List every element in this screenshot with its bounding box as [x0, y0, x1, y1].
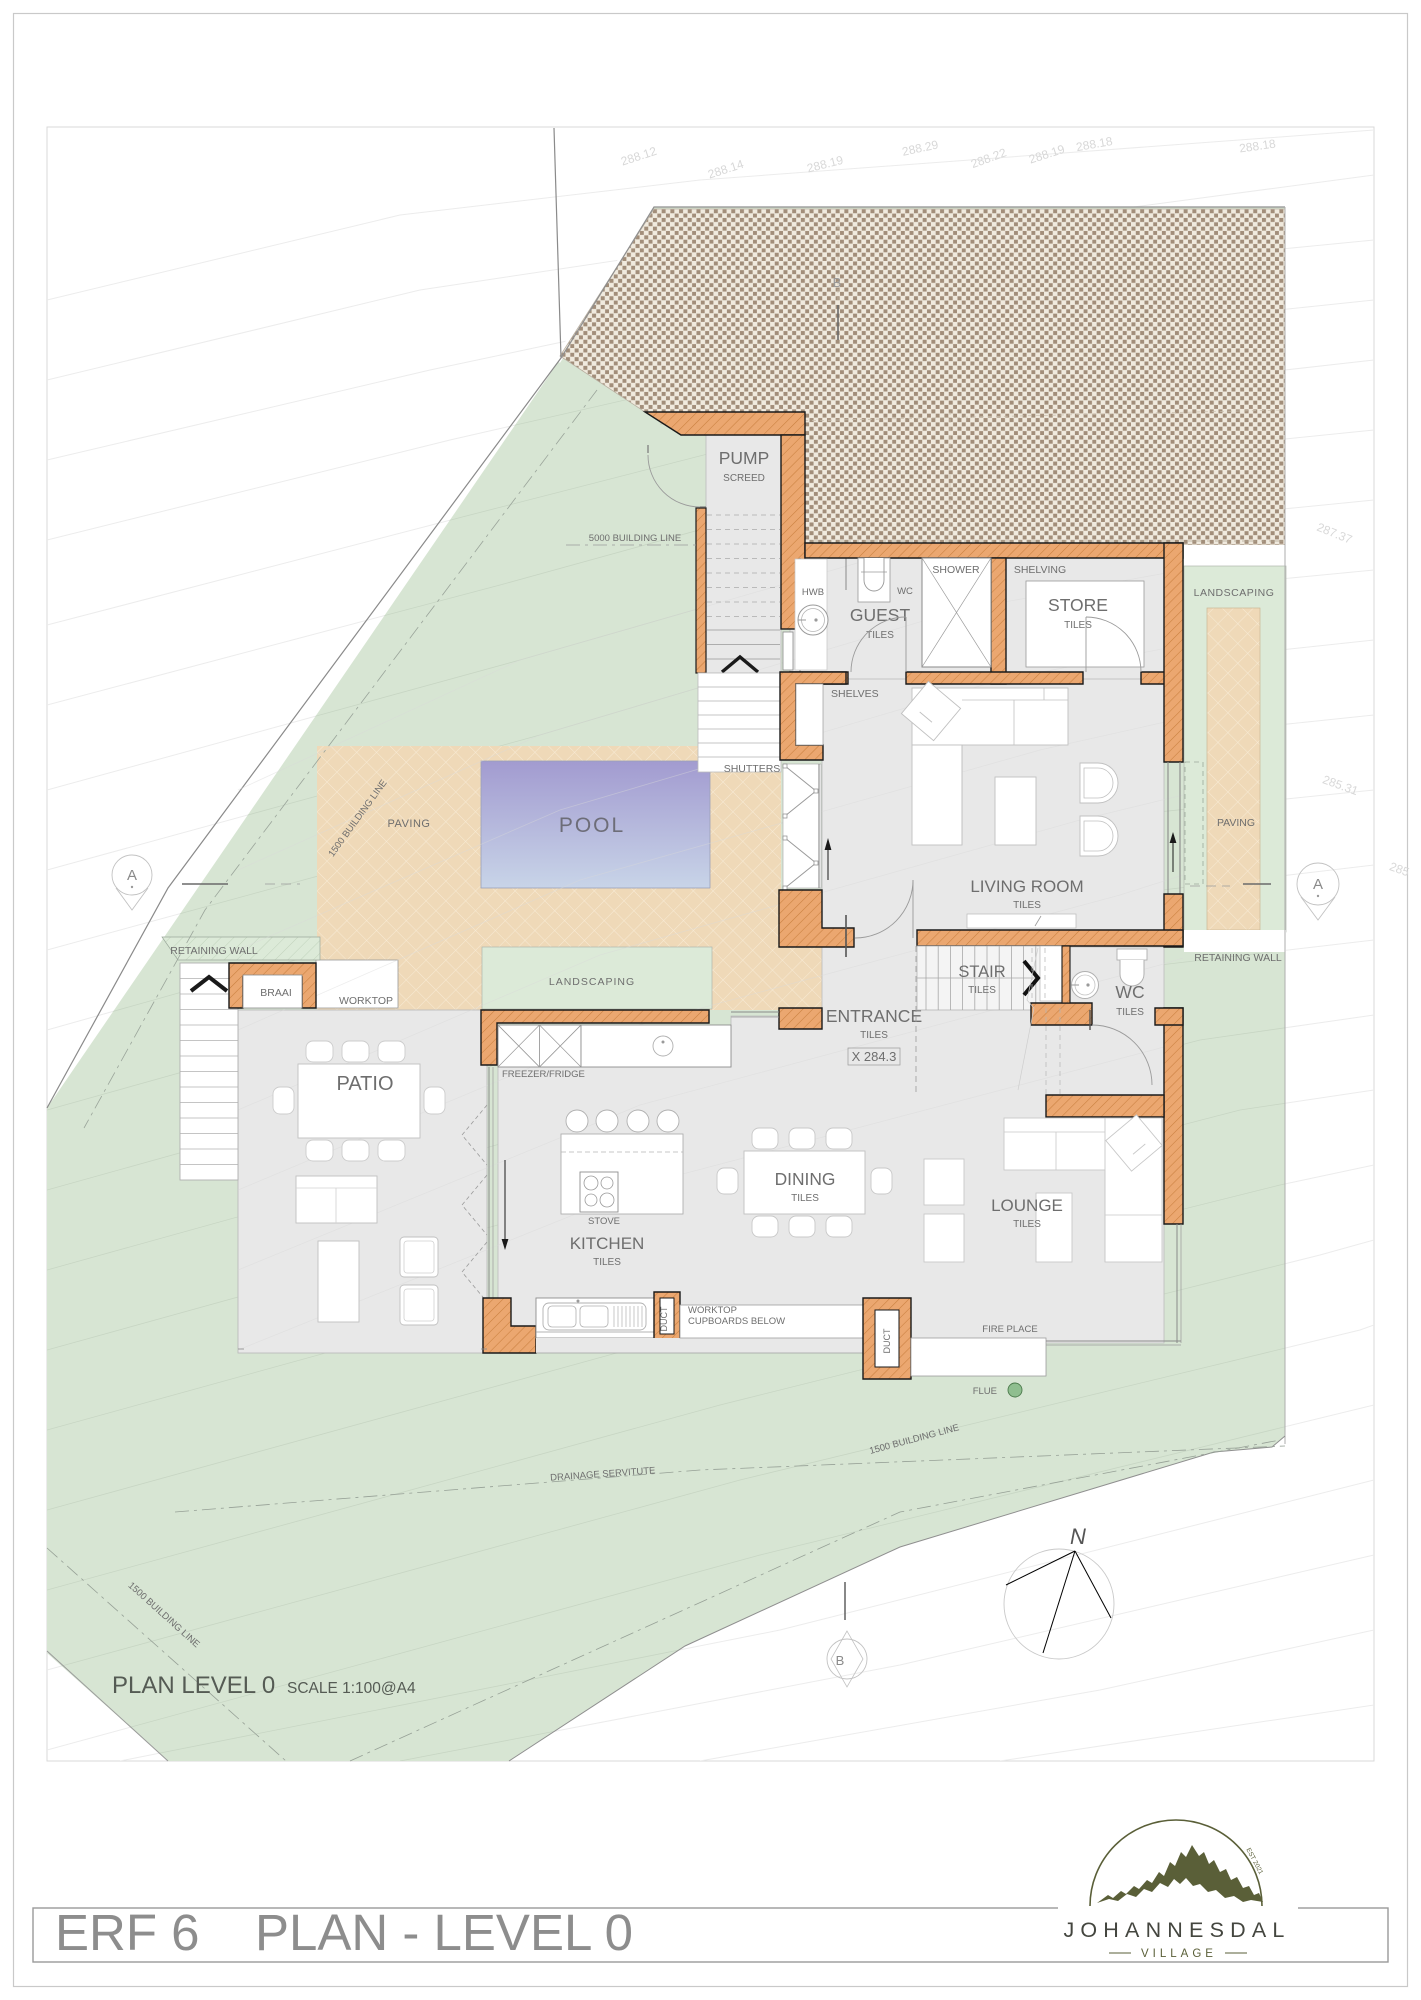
- svg-text:LOUNGE: LOUNGE: [991, 1196, 1063, 1215]
- svg-text:TILES: TILES: [1064, 620, 1092, 631]
- svg-text:HWB: HWB: [802, 587, 824, 598]
- svg-text:WORKTOP: WORKTOP: [688, 1305, 737, 1316]
- svg-text:DUCT: DUCT: [882, 1328, 892, 1353]
- svg-text:LANDSCAPING: LANDSCAPING: [549, 976, 635, 988]
- svg-text:STOVE: STOVE: [588, 1216, 620, 1227]
- svg-text:A: A: [1313, 876, 1323, 893]
- svg-text:B: B: [836, 1653, 845, 1668]
- svg-text:A: A: [127, 867, 137, 884]
- svg-text:TILES: TILES: [1013, 900, 1041, 911]
- svg-text:STORE: STORE: [1048, 595, 1108, 615]
- svg-text:SHUTTERS: SHUTTERS: [724, 763, 781, 775]
- svg-text:WORKTOP: WORKTOP: [339, 995, 393, 1007]
- svg-text:LIVING ROOM: LIVING ROOM: [970, 877, 1083, 896]
- svg-text:PLAN LEVEL 0: PLAN LEVEL 0: [112, 1672, 275, 1699]
- svg-text:LANDSCAPING: LANDSCAPING: [1194, 587, 1275, 599]
- svg-text:DINING: DINING: [775, 1169, 836, 1189]
- svg-text:PLAN - LEVEL 0: PLAN - LEVEL 0: [255, 1904, 633, 1961]
- svg-text:POOL: POOL: [559, 814, 625, 837]
- svg-text:ERF 6: ERF 6: [55, 1904, 200, 1961]
- svg-text:CUPBOARDS BELOW: CUPBOARDS BELOW: [688, 1316, 785, 1327]
- svg-text:B: B: [833, 275, 842, 290]
- svg-text:WC: WC: [1115, 982, 1144, 1002]
- svg-text:BRAAI: BRAAI: [260, 987, 292, 999]
- svg-text:SHELVING: SHELVING: [1014, 564, 1066, 576]
- svg-text:FIRE PLACE: FIRE PLACE: [982, 1324, 1037, 1335]
- svg-text:SCALE 1:100@A4: SCALE 1:100@A4: [287, 1680, 416, 1697]
- svg-text:PAVING: PAVING: [1217, 817, 1255, 829]
- svg-text:RETAINING WALL: RETAINING WALL: [1194, 952, 1282, 964]
- svg-text:PAVING: PAVING: [388, 818, 431, 830]
- svg-text:TILES: TILES: [968, 985, 996, 996]
- svg-text:WC: WC: [897, 586, 913, 597]
- svg-text:PATIO: PATIO: [336, 1073, 393, 1095]
- svg-text:X 284.3: X 284.3: [852, 1049, 897, 1064]
- svg-text:TILES: TILES: [1013, 1219, 1041, 1230]
- svg-text:ENTRANCE: ENTRANCE: [826, 1006, 922, 1026]
- svg-text:JOHANNESDAL: JOHANNESDAL: [1063, 1918, 1290, 1942]
- svg-text:GUEST: GUEST: [850, 605, 911, 625]
- svg-text:PUMP: PUMP: [719, 448, 770, 468]
- svg-text:FREEZER/FRIDGE: FREEZER/FRIDGE: [502, 1069, 585, 1080]
- svg-text:5000 BUILDING LINE: 5000 BUILDING LINE: [589, 533, 681, 544]
- svg-text:SHELVES: SHELVES: [831, 688, 879, 700]
- svg-text:KITCHEN: KITCHEN: [570, 1234, 645, 1253]
- svg-text:TILES: TILES: [1116, 1007, 1144, 1018]
- svg-text:VILLAGE: VILLAGE: [1141, 1948, 1217, 1960]
- svg-text:SHOWER: SHOWER: [932, 564, 980, 576]
- svg-text:TILES: TILES: [791, 1193, 819, 1204]
- svg-text:STAIR: STAIR: [958, 963, 1005, 981]
- svg-text:DUCT: DUCT: [659, 1306, 669, 1331]
- svg-text:SCREED: SCREED: [723, 473, 765, 484]
- svg-text:FLUE: FLUE: [973, 1386, 997, 1397]
- svg-text:TILES: TILES: [866, 630, 894, 641]
- svg-text:TILES: TILES: [860, 1030, 888, 1041]
- svg-text:TILES: TILES: [593, 1257, 621, 1268]
- svg-text:N: N: [1070, 1524, 1086, 1549]
